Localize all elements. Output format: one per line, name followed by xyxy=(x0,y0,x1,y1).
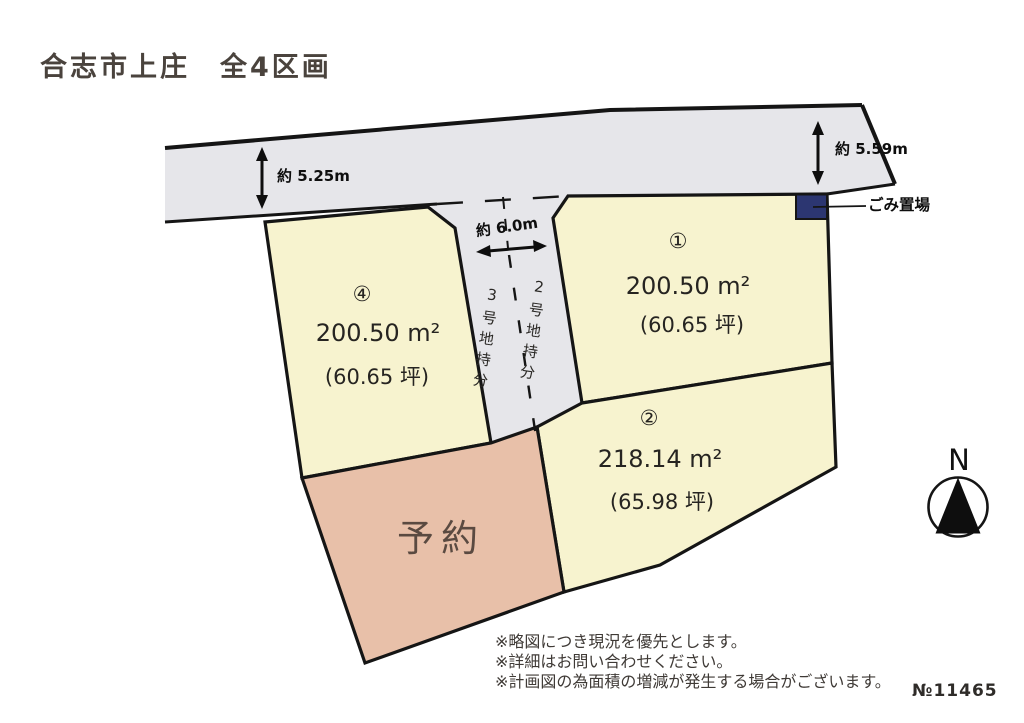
garbage-leader-line xyxy=(813,206,866,207)
plot2-number: ② xyxy=(640,406,659,430)
page-title: 合志市上庄 全4区画 xyxy=(40,52,332,83)
garbage-station-label: ごみ置場 xyxy=(868,197,930,215)
plot-map-drawing xyxy=(0,0,1024,723)
note-line-3: ※計画図の為面積の増減が発生する場合がございます。 xyxy=(495,673,891,691)
north-compass xyxy=(929,478,988,537)
road-width-left-label: 約 5.25m xyxy=(277,168,350,185)
plot4-area-tsubo: (60.65 坪) xyxy=(325,365,429,389)
plot2-area-tsubo: (65.98 坪) xyxy=(610,490,714,514)
plot2-area-m2: 218.14 m² xyxy=(598,446,723,474)
road-width-right-label: 約 5.59m xyxy=(835,141,908,158)
reserved-plot-label: 予約 xyxy=(397,518,485,561)
reference-number: №11465 xyxy=(912,682,998,702)
note-line-1: ※略図につき現況を優先とします。 xyxy=(495,633,747,651)
note-line-2: ※詳細はお問い合わせください。 xyxy=(495,653,732,671)
compass-north-label: N xyxy=(948,444,970,477)
plot1-area-tsubo: (60.65 坪) xyxy=(640,313,744,337)
plot4-number: ④ xyxy=(353,282,372,306)
plot1-number: ① xyxy=(669,229,688,253)
plot1-area-m2: 200.50 m² xyxy=(626,273,751,301)
plot4-area-m2: 200.50 m² xyxy=(316,320,441,348)
land-plot-map-page: 合志市上庄 全4区画 ④ 200.50 m² (60.65 坪) ① 200.5… xyxy=(0,0,1024,723)
